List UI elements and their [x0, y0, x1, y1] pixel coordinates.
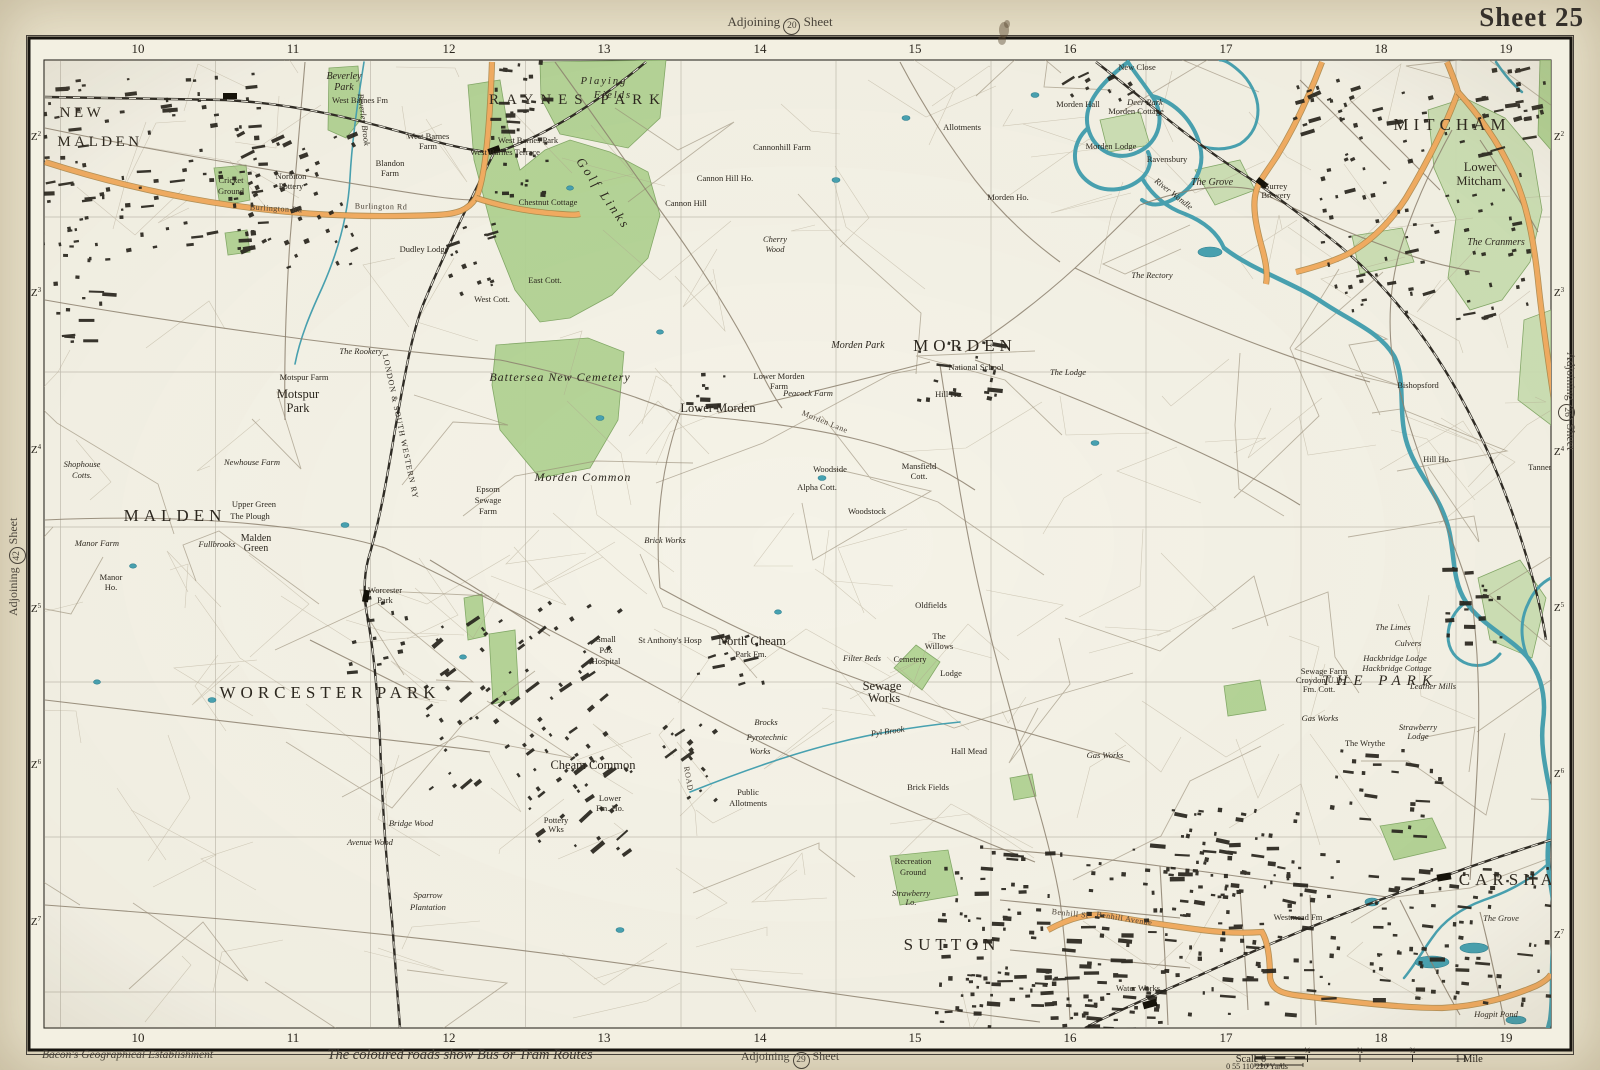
paper-vignette [44, 60, 1551, 1028]
top-adjoining-number: 20 [783, 18, 800, 35]
grid-number-bottom: 17 [1220, 1030, 1234, 1045]
grid-number-top: 15 [909, 41, 922, 56]
grid-number-bottom: 18 [1375, 1030, 1388, 1045]
map-sheet: Adjoining 20 Sheet Sheet 25 Adjoining 42… [0, 0, 1600, 1070]
grid-number-top: 18 [1375, 41, 1388, 56]
grid-number-top: 10 [132, 41, 145, 56]
grid-number-bottom: 10 [132, 1030, 145, 1045]
map-canvas: NEWMALDENRAYNES PARKMALDENWORCESTER PARK… [0, 0, 1600, 1070]
top-adjoining-note: Adjoining 20 Sheet [695, 14, 865, 35]
top-adjoining-suffix: Sheet [804, 14, 833, 29]
grid-number-top: 13 [598, 41, 611, 56]
left-adjoining-suffix: Sheet [6, 518, 20, 545]
bottom-adjoining-suffix: Sheet [813, 1049, 840, 1063]
grid-number-bottom: 15 [909, 1030, 922, 1045]
grid-number-bottom: 11 [287, 1030, 300, 1045]
grid-number-bottom: 13 [598, 1030, 611, 1045]
scale-quarter: ¼ [1305, 1046, 1311, 1055]
right-adjoining-suffix: Sheet [1564, 424, 1578, 451]
bottom-adjoining-number: 29 [793, 1052, 810, 1069]
grid-number-bottom: 14 [754, 1030, 768, 1045]
grid-number-bottom: 12 [443, 1030, 456, 1045]
scale-yards-label: 0 55 110 220 Yards [1226, 1062, 1288, 1070]
grid-number-top: 12 [443, 41, 456, 56]
grid-number-top: 16 [1064, 41, 1078, 56]
bottom-adjoining-note: Adjoining 29 Sheet [723, 1049, 857, 1069]
tram-route-note: The coloured roads show Bus or Tram Rout… [285, 1047, 635, 1064]
grid-number-top: 11 [287, 41, 300, 56]
right-adjoining-number: 26 [1558, 404, 1575, 421]
ink-smudge [998, 35, 1006, 45]
right-adjoining-prefix: Adjoining [1564, 352, 1578, 401]
grid-number-bottom: 16 [1064, 1030, 1078, 1045]
grid-number-top: 17 [1220, 41, 1234, 56]
ink-smudge [1004, 20, 1010, 28]
top-adjoining-prefix: Adjoining [727, 14, 780, 29]
grid-number-top: 14 [754, 41, 768, 56]
left-adjoining-prefix: Adjoining [6, 567, 20, 616]
scale-mile-label: 1 Mile [1455, 1054, 1483, 1065]
scale-quarter: ½ [1357, 1046, 1363, 1055]
grid-number-bottom: 19 [1500, 1030, 1513, 1045]
left-adjoining-number: 42 [9, 547, 26, 564]
scale-quarter: ¾ [1410, 1046, 1416, 1055]
grid-number-top: 19 [1500, 41, 1513, 56]
sheet-title: Sheet 25 [1479, 2, 1584, 33]
right-adjoining-note: Adjoining 26 Sheet [1558, 352, 1578, 450]
publisher-attribution: Bacon's Geographical Establishment [42, 1049, 213, 1061]
bottom-adjoining-prefix: Adjoining [741, 1049, 790, 1063]
map-content: NEWMALDENRAYNES PARKMALDENWORCESTER PARK… [0, 0, 1600, 1065]
left-adjoining-note: Adjoining 42 Sheet [6, 518, 26, 616]
